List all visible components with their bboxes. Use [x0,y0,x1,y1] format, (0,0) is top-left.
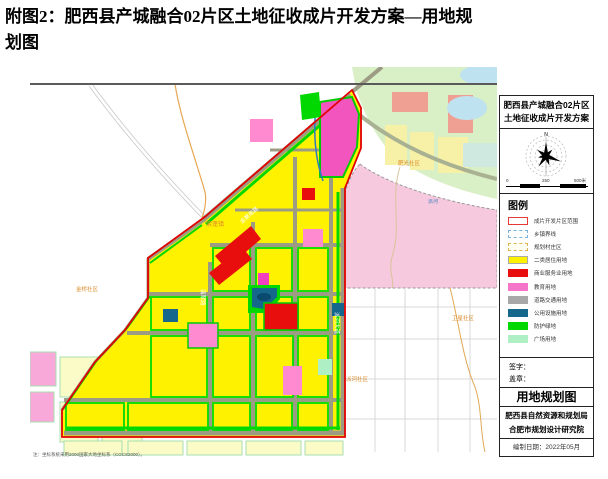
legend-swatch-commercial [508,269,528,277]
legend-item-green: 防护绿地 [508,320,593,333]
page-title-line1: 附图2：肥西县产城融合02片区土地征收成片开发方案—用地规 [5,7,473,26]
panel-plan-title: 肥西县产城融合02片区 土地征收成片开发方案 [500,96,593,129]
outside-area-southeast [345,288,497,452]
education-parcel-west [188,323,218,348]
commercial-parcel-small [302,188,315,200]
legend-item-education: 教育用地 [508,280,593,293]
compass-section: N 0 250 500米 [500,129,593,194]
legend-item-road: 道路交通用地 [508,293,593,306]
sheet-title: 用地规划图 [500,388,593,407]
label-community-right-upper: 肥光社区 [398,159,420,167]
compass-rose-icon: N [500,129,593,179]
legend-item-commercial: 商业服务业用地 [508,267,593,280]
organization-section: 肥西县自然资源和规划局 合肥市规划设计研究院 [500,407,593,439]
legend-item-boundary: 成片开发片区范围 [508,214,593,227]
plaza-parcel [318,359,332,375]
planning-area [62,90,361,437]
education-parcel [303,229,323,247]
legend-swatch-plaza [508,335,528,343]
legend-item-residential: 二类居住用地 [508,254,593,267]
planning-document-page: { "page": { "title_line1": "附图2：肥西县产城融合0… [0,0,608,479]
legend-swatch-green [508,322,528,330]
scale-label-mid: 250 [542,178,550,183]
label-community-bottom-left: 金桥社区 [76,285,98,293]
map-frame-panel: 肥西县产城融合02片区 土地征收成片开发方案 N 0 250 500米 [499,95,594,457]
label-town-left: 紫蓬镇 [206,219,224,228]
legend-item-township-line: 乡镇界线 [508,227,593,240]
legend-swatch-boundary [508,217,528,225]
legend-item-plaza: 广场用地 [508,333,593,346]
land-use-map: 紫蓬镇 金桥社区 肥光社区 卫星社区 派河社区 派河 金寨南路 翡翠路 派河大道 [30,67,497,457]
seal-label: 盖章： [509,374,593,386]
signature-section: 签字： 盖章： [500,358,593,388]
org-line1: 肥西县自然资源和规划局 [500,409,593,423]
scale-bar: 0 250 500米 [506,179,588,191]
legend-swatch-education [508,283,528,291]
legend-swatch-village-zone [508,243,528,251]
sign-label: 签字： [509,362,593,374]
legend-item-village-zone: 规划村庄区 [508,240,593,253]
label-road-east: 派河大道 [333,312,341,334]
commercial-parcel-large [264,303,298,330]
scale-label-0: 0 [506,178,509,183]
page-title-line2: 划图 [5,33,39,52]
map-drawing [30,67,497,457]
utility-parcel-west [163,309,178,322]
legend-section: 图例 成片开发片区范围 乡镇界线 规划村庄区 二类居住用地 商业服务业用地 教育… [500,194,593,358]
green-parcel-north [300,92,321,120]
education-parcel [250,119,273,142]
pond [257,293,271,301]
legend-swatch-utility [508,309,528,317]
legend-swatch-road [508,296,528,304]
legend-swatch-residential [508,256,528,264]
panel-plan-title-line2: 土地征收成片开发方案 [500,112,593,125]
label-community-bottom-right: 派河社区 [346,375,368,383]
label-river: 派河 [428,198,438,205]
map-footnote: 注：坐标系统采用2000国家大地坐标系（CGCS2000）。 [33,452,145,458]
label-road-west: 翡翠路 [199,289,207,306]
legend-title: 图例 [508,197,593,212]
org-line2: 合肥市规划设计研究院 [500,423,593,437]
label-community-right-lower: 卫星社区 [452,314,474,322]
date-line: 编制日期：2022年05月 [500,439,593,457]
legend-swatch-township-line [508,230,528,238]
page-title: 附图2：肥西县产城融合02片区土地征收成片开发方案—用地规划图 [5,4,601,57]
education-parcel-south [283,366,302,395]
panel-plan-title-line1: 肥西县产城融合02片区 [500,99,593,112]
education-parcel-small [258,273,269,285]
legend-item-utility: 公用设施用地 [508,306,593,319]
